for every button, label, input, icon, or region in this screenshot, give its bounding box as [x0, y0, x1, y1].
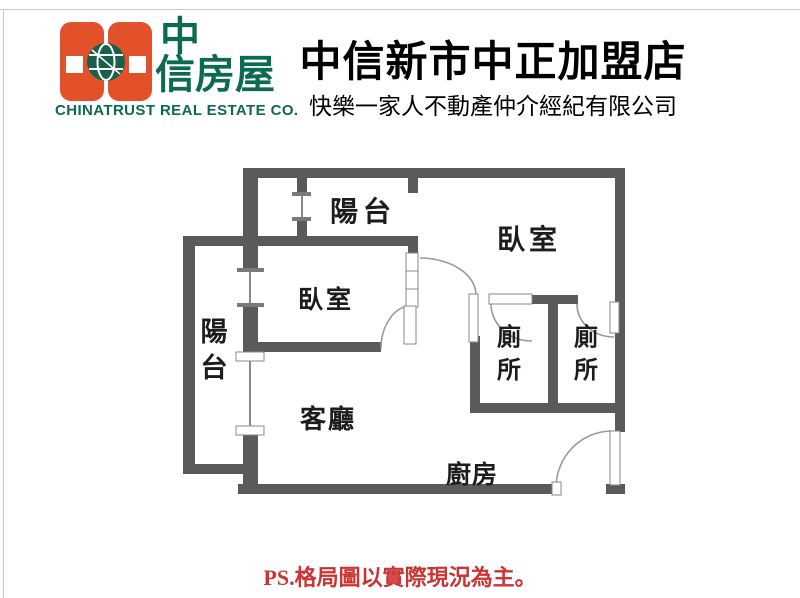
wall-bedroom-center-top: [243, 236, 418, 246]
window-slot: [236, 426, 264, 435]
flyer-page: 中 信房屋 CHINATRUST REAL ESTATE CO. 中信新市中正加…: [0, 0, 800, 598]
window-tick: [292, 217, 311, 221]
wall-toilet-divider: [548, 304, 558, 413]
wall-top: [243, 168, 625, 178]
door-leaf-bedroom-wall: [406, 253, 418, 307]
room-label-kitchen: 廚房: [446, 455, 498, 491]
wall-balcony-left-bottom: [183, 464, 250, 474]
door-leaf-toilet-right: [610, 302, 619, 333]
room-label-balcony-top: 陽台: [330, 190, 396, 230]
door-leaf-toilet-left: [489, 294, 532, 304]
wall-balcony-divider-lower: [297, 221, 307, 246]
wall-toilet-west: [470, 336, 480, 413]
room-label-toilet-left: 廁所: [495, 321, 523, 387]
wall-balcony-divider-upper: [297, 178, 307, 194]
window-slot: [236, 352, 264, 361]
wall-left-lower: [243, 435, 258, 484]
door-leaf-bedroom-right: [469, 294, 478, 342]
room-label-bedroom-center: 臥室: [298, 280, 354, 316]
footer-note: PS.格局圖以實際現況為主。: [0, 560, 800, 592]
floor-plan: [0, 0, 800, 598]
door-arc-entry: [556, 431, 612, 488]
door-leaf-bedroom-center: [404, 306, 416, 344]
wall-bottom: [238, 484, 553, 494]
room-label-balcony-left: 陽台: [198, 314, 230, 386]
wall-left-upper: [243, 168, 258, 270]
wall-bedroom-center-bottom: [250, 342, 381, 352]
door-leaf-entry: [610, 431, 620, 485]
room-label-bedroom-right: 臥室: [497, 218, 561, 258]
wall-bedroom-center-right: [408, 236, 418, 254]
room-label-toilet-right: 廁所: [572, 321, 600, 387]
door-arc-bedroom-right: [420, 258, 476, 295]
window-tick: [292, 192, 311, 196]
window-tick: [237, 268, 264, 272]
wall-toilet-bottom: [470, 403, 615, 413]
room-label-living-room: 客廳: [300, 399, 356, 436]
wall-right: [615, 168, 625, 432]
wall-toilet-top: [532, 295, 578, 304]
window-tick: [237, 303, 264, 307]
door-jamb-entry: [552, 482, 561, 495]
wall-balcony-left-outer: [183, 236, 195, 474]
wall-top-stub: [408, 178, 418, 193]
